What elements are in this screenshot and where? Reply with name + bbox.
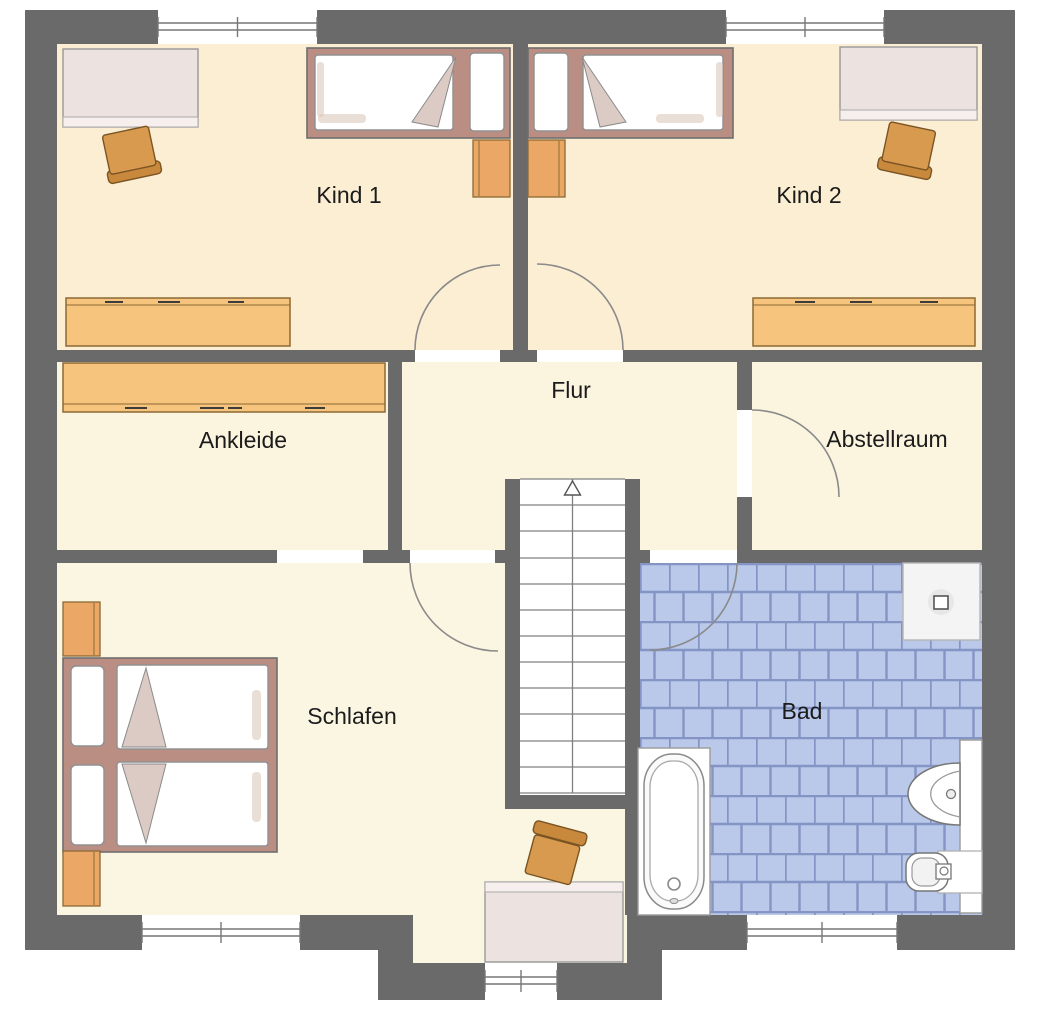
wall-abstellraum-bad [737, 550, 982, 563]
wall-flur-schlafen-stub-left [363, 550, 410, 563]
double-bed-schlafen [63, 658, 277, 852]
pillow-schlafen-bottom [71, 765, 104, 845]
bathtub [638, 748, 710, 915]
wall-exterior-right [982, 10, 1015, 950]
window-kind2 [726, 10, 884, 44]
door-opening-kind2 [537, 350, 623, 362]
bed-kind2 [528, 48, 733, 138]
toilet [906, 851, 982, 893]
nightstand-kind2 [528, 140, 565, 197]
room-label-flur: Flur [551, 377, 591, 403]
desk-kind1 [63, 49, 198, 127]
window-kind1 [158, 10, 317, 44]
bed-kind1 [307, 48, 510, 138]
room-floor-abstellraum [752, 362, 982, 550]
door-opening-kind1 [415, 350, 500, 362]
wall-staircase-bottom [505, 795, 640, 809]
wall-staircase-left [505, 479, 520, 795]
sideboard-kind2 [753, 298, 975, 346]
nightstand-schlafen-bottom [63, 851, 100, 906]
shower [903, 563, 980, 640]
window-bad [747, 915, 897, 950]
window-schlafen [142, 915, 300, 950]
passage-ankleide-schlafen [277, 550, 363, 563]
wall-ankleide-flur [388, 362, 402, 550]
nightstand-schlafen-top [63, 602, 100, 656]
staircase [520, 479, 625, 795]
room-label-kind2: Kind 2 [776, 182, 841, 208]
floor-plan-page: Kind 1 Kind 2 Ankleide Flur Abstellraum … [0, 0, 1043, 1034]
floor-plan-svg: Kind 1 Kind 2 Ankleide Flur Abstellraum … [0, 0, 1043, 1034]
room-label-abstellraum: Abstellraum [826, 426, 947, 452]
wall-middle-band-center-stub [500, 350, 537, 362]
desk-bumpout [485, 882, 623, 962]
sideboard-kind1 [66, 298, 290, 346]
shower-drain [934, 596, 948, 609]
sink-faucet [947, 790, 956, 799]
wall-exterior-left [25, 10, 57, 950]
wall-flur-abstellraum-upper [737, 362, 752, 410]
room-label-schlafen: Schlafen [307, 703, 397, 729]
wall-bumpout-left [378, 915, 413, 1000]
door-opening-schlafen [410, 550, 495, 563]
door-opening-bad [650, 550, 737, 563]
wall-ankleide-schlafen [57, 550, 277, 563]
window-bumpout [485, 963, 557, 1000]
door-opening-abstellraum [737, 410, 752, 497]
nightstand-kind1 [473, 140, 510, 197]
wall-middle-band-right [623, 350, 982, 362]
pillow-kind1 [470, 53, 504, 131]
room-label-kind1: Kind 1 [316, 182, 381, 208]
room-label-bad: Bad [782, 698, 823, 724]
pillow-kind2 [534, 53, 568, 131]
wardrobe-ankleide [63, 363, 385, 412]
desk-kind2 [840, 47, 977, 120]
wall-bumpout-right [627, 915, 662, 1000]
wall-middle-band-left [57, 350, 415, 362]
room-label-ankleide: Ankleide [199, 427, 287, 453]
pillow-schlafen-top [71, 666, 104, 746]
wall-kids-divider [513, 44, 528, 350]
wall-flur-abstellraum-lower [737, 497, 752, 550]
